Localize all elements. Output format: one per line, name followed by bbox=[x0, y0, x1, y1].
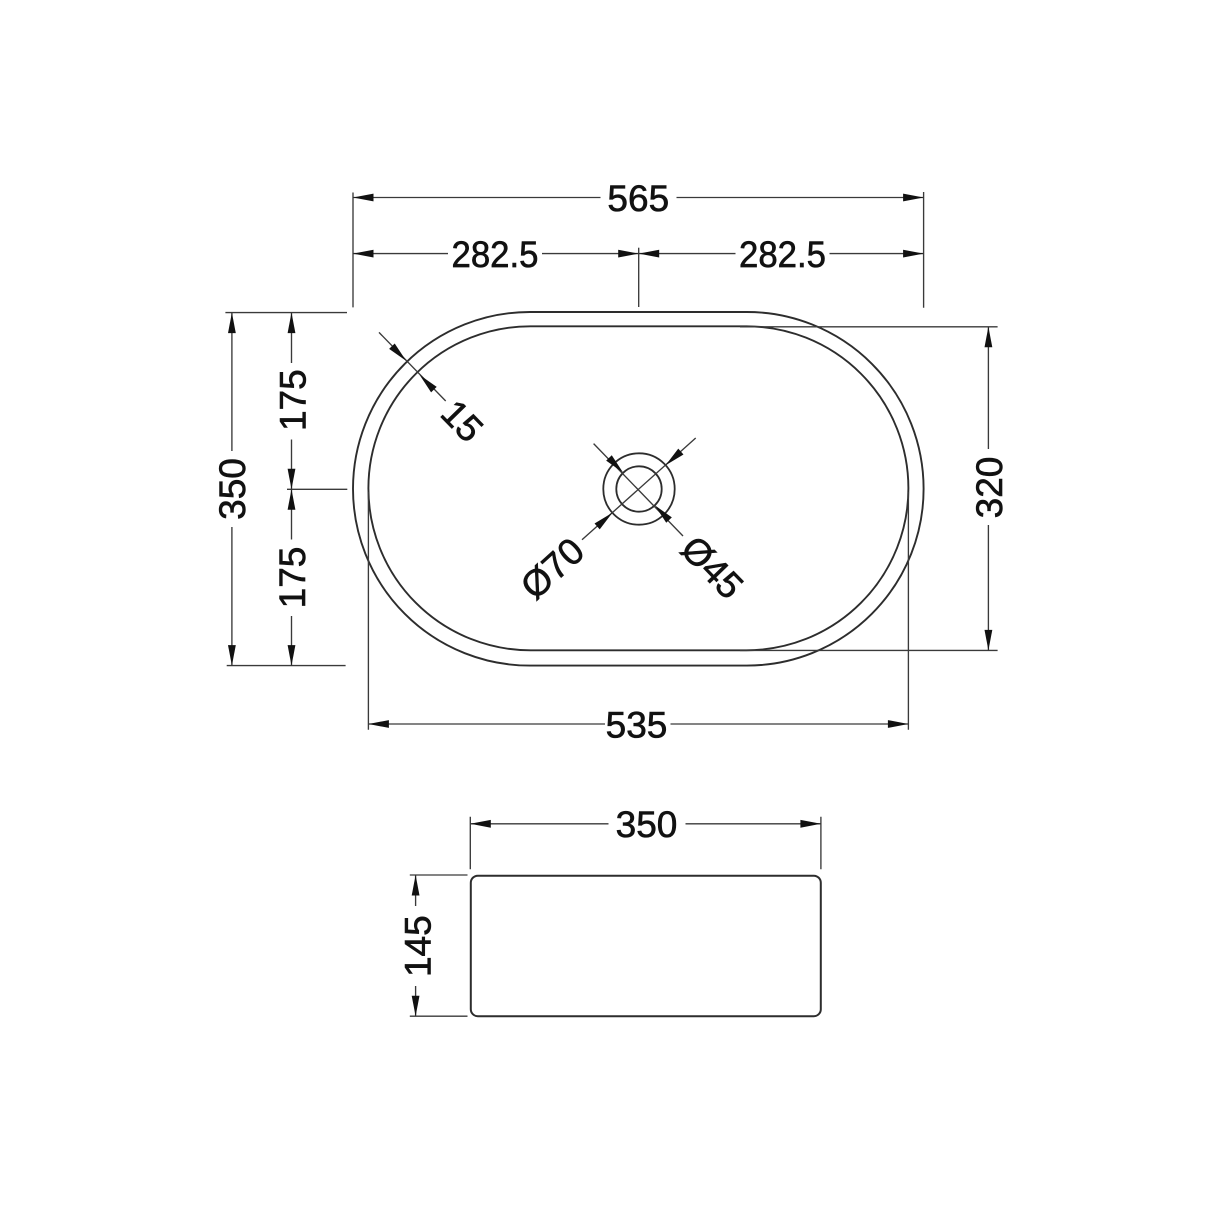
svg-text:350: 350 bbox=[212, 458, 253, 520]
svg-text:565: 565 bbox=[607, 178, 669, 219]
svg-text:145: 145 bbox=[397, 915, 438, 977]
svg-text:350: 350 bbox=[616, 804, 678, 845]
svg-text:175: 175 bbox=[272, 547, 313, 609]
svg-text:282.5: 282.5 bbox=[739, 234, 826, 275]
svg-text:282.5: 282.5 bbox=[452, 234, 539, 275]
svg-text:175: 175 bbox=[273, 369, 314, 431]
svg-text:535: 535 bbox=[606, 705, 668, 746]
svg-text:320: 320 bbox=[969, 457, 1010, 519]
